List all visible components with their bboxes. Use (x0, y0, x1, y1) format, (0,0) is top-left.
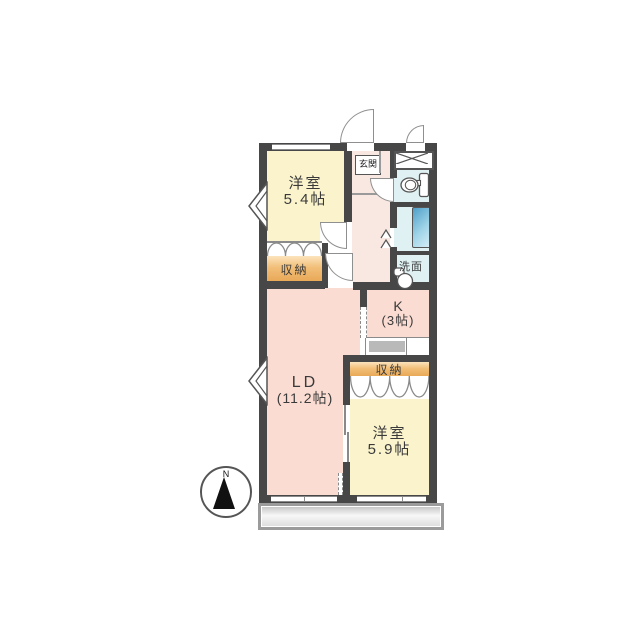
wall-segment (390, 202, 437, 207)
utility-door-swing (406, 125, 424, 143)
sliding-door (343, 405, 350, 462)
wall-segment (360, 290, 367, 307)
closet-door-band-upper (267, 241, 322, 256)
bay-window-icon (246, 181, 268, 231)
toilet-icon (400, 172, 430, 198)
wall-segment (344, 151, 352, 222)
entrance-opening (347, 143, 374, 151)
entrance-door-swing (340, 109, 374, 143)
wall-segment (429, 143, 437, 503)
utility-door-opening (406, 143, 425, 151)
folding-door-icon (380, 229, 392, 249)
wall-segment (390, 251, 437, 255)
window-sash-divider (402, 496, 403, 502)
room-area: (3帖) (367, 314, 429, 328)
closet-door-band-lower (350, 376, 429, 399)
wall-segment (259, 281, 325, 289)
window-sash-divider (304, 496, 305, 502)
storage-lower-label: 収納 (350, 361, 429, 378)
accordion-arcs-icon (350, 376, 429, 399)
room-area: (11.2帖) (258, 391, 352, 406)
bedroom-lower-label: 洋室 5.9帖 (350, 426, 429, 458)
room-name: K (367, 299, 429, 314)
window-top (272, 144, 330, 150)
window-bedroom-balcony (357, 496, 426, 502)
open-passage-marker (338, 473, 343, 495)
room-area: 5.4帖 (267, 192, 344, 208)
accordion-arcs-icon (267, 241, 322, 256)
room-name: 収納 (280, 263, 308, 277)
entrance-label-box: 玄関 (355, 155, 381, 175)
room-area: 5.9帖 (350, 442, 429, 458)
sliding-door-panel (344, 405, 346, 435)
kitchen-label: K (3帖) (367, 299, 429, 328)
cross-icon (396, 153, 428, 164)
room-name: 洋室 (350, 426, 429, 442)
kitchen-sink-block (369, 341, 405, 352)
room-name: LD (258, 374, 352, 391)
floor-plan-canvas: 玄関 洋室 5.4帖 収納 LD (11.2帖) (0, 0, 640, 640)
room-name: 収納 (375, 363, 403, 377)
pipe-space-box (394, 151, 434, 170)
closet-track-line (267, 241, 322, 243)
wall-segment (390, 207, 397, 228)
sliding-door-panel (347, 432, 349, 462)
bedroom-upper-label: 洋室 5.4帖 (267, 176, 344, 208)
room-name: 洗面 (399, 261, 423, 273)
entrance-divider-line (379, 151, 381, 173)
washroom-label: 洗面 (392, 258, 430, 274)
living-dining-label: LD (11.2帖) (258, 374, 352, 406)
kitchen-open-passage (360, 307, 367, 338)
kitchen-counter-divider (406, 337, 407, 355)
north-compass-icon: N (200, 466, 252, 518)
room-name: 洋室 (267, 176, 344, 192)
entrance-label: 玄関 (359, 159, 377, 169)
storage-upper-label: 収納 (267, 261, 322, 278)
north-arrow-icon (213, 477, 235, 509)
balcony (258, 503, 444, 530)
